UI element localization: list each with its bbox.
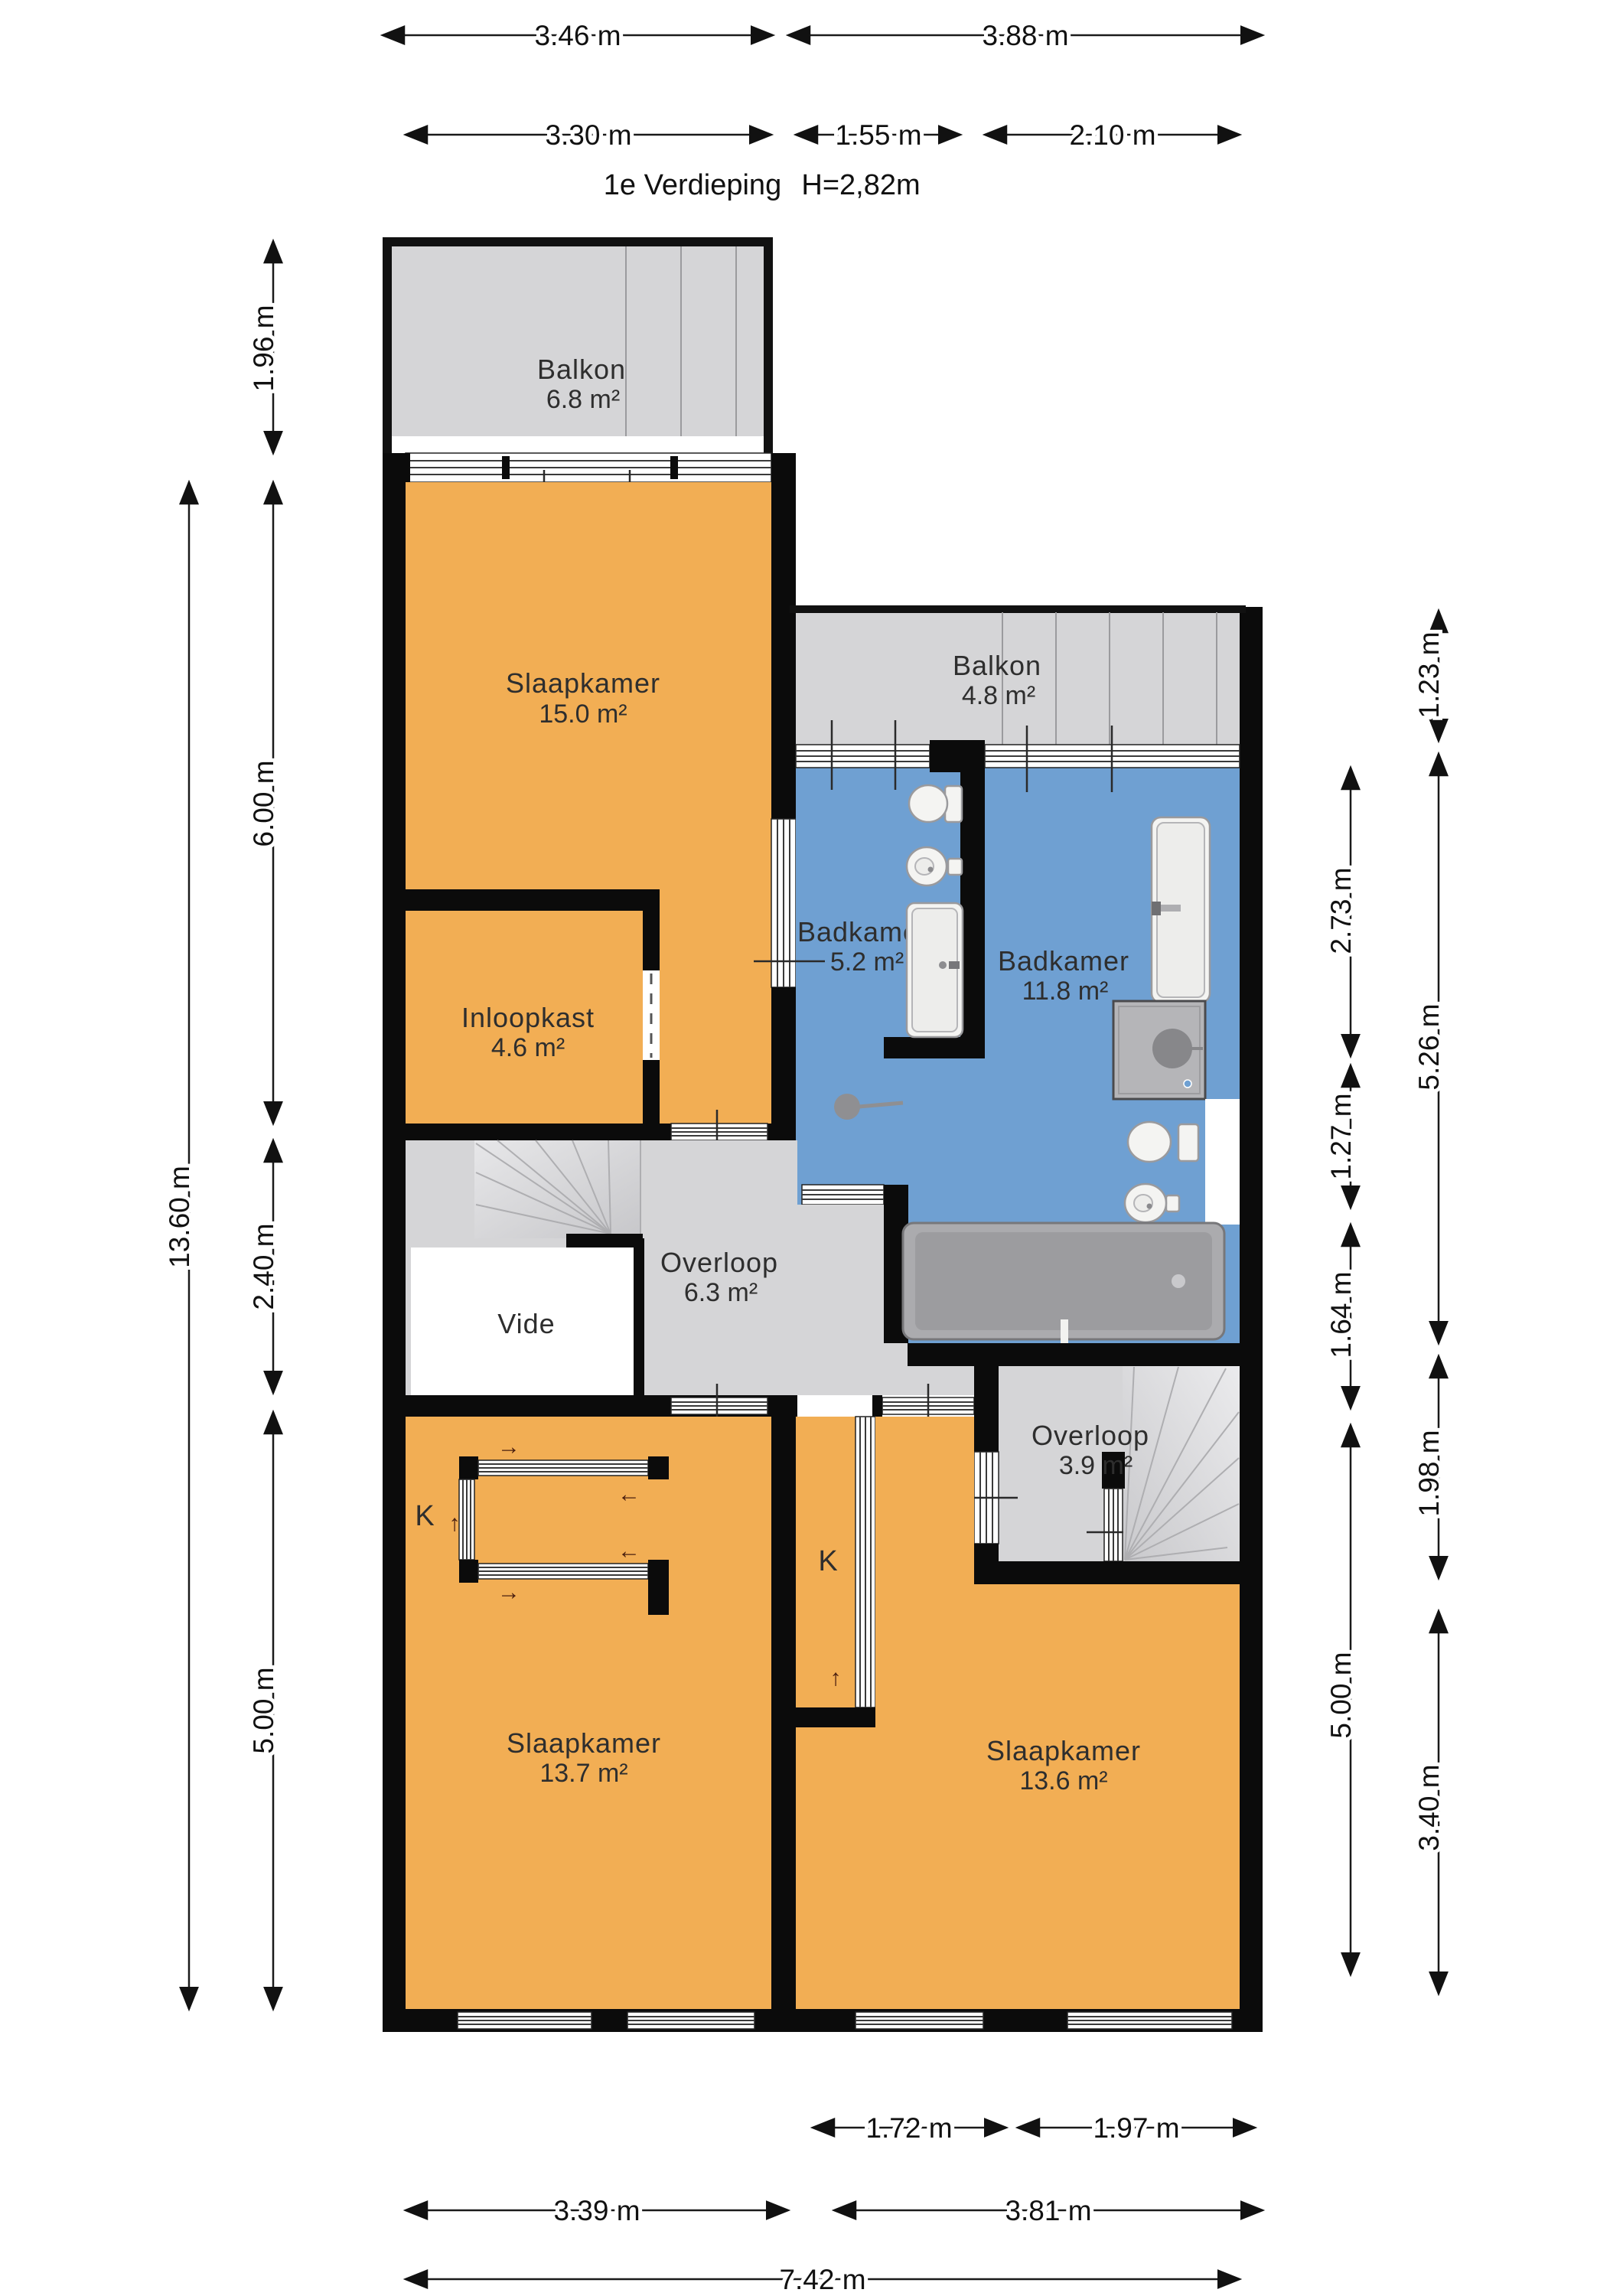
toilet-icon (909, 785, 962, 822)
dim-label: 3.88 m (982, 20, 1068, 51)
room-area: 15.0 m² (539, 700, 627, 729)
landing-right: Overloop 3.9 m² (955, 1366, 1263, 1584)
bathtub-small-icon (907, 903, 963, 1037)
bathtub-large-icon (903, 1223, 1224, 1353)
vide-right-wall (634, 1238, 644, 1395)
wall-between-bedrooms (771, 1417, 796, 2009)
bedroom-137: Slaapkamer 13.7 m² K → ← ↑ ← → (406, 1417, 771, 2009)
closet-right-wall (643, 911, 660, 970)
room-label: Balkon (953, 650, 1041, 681)
dim-label: 1.72 m (865, 2112, 952, 2144)
wall-niche (1205, 1099, 1240, 1225)
dim-label: 5.00 m (1325, 1652, 1357, 1738)
dim-label: 1.55 m (835, 119, 921, 151)
room-label: Slaapkamer (986, 1735, 1141, 1766)
dim-label: 1.97 m (1093, 2112, 1179, 2144)
room-label: Overloop (660, 1247, 778, 1278)
balcony-right-wall (764, 237, 773, 453)
page-title-height: H=2,82m (801, 169, 920, 201)
balcony-left-wall (383, 237, 392, 453)
window-bathrooms-top (796, 740, 1240, 772)
dim-label: 3.81 m (1005, 2195, 1091, 2226)
slide-arrow-icon: ↑ (449, 1511, 461, 1536)
shower-cabin-icon (1113, 1001, 1205, 1099)
slide-arrow-icon: ← (618, 1482, 640, 1507)
bathroom-small-bottom-wall (884, 1037, 985, 1058)
room-label: Inloopkast (461, 1002, 595, 1033)
room-label: Slaapkamer (506, 667, 660, 699)
dim-label: 3.30 m (545, 119, 631, 151)
toilet-icon (1128, 1122, 1198, 1162)
slide-arrow-icon: ↑ (830, 1665, 842, 1691)
window (855, 2012, 983, 2029)
landing-right-bottom-wall (974, 1561, 1263, 1584)
wall-left-exterior (383, 453, 406, 2032)
room-area: 6.8 m² (546, 385, 620, 414)
room-area: 13.7 m² (539, 1759, 627, 1788)
room-area: 6.3 m² (684, 1278, 758, 1307)
room-label: Badkamer (998, 945, 1129, 977)
dim-label: 1.96 m (248, 305, 279, 391)
door-bathroom-small (802, 1185, 884, 1205)
dim-label: 2.73 m (1325, 867, 1357, 954)
dim-label: 2.40 m (248, 1223, 279, 1309)
window (458, 2012, 592, 2029)
dim-label: 1.23 m (1413, 631, 1445, 718)
bathroom-bottom-wall (908, 1343, 1263, 1366)
room-label: Balkon (537, 354, 626, 385)
dim-label: 1.98 m (1413, 1430, 1445, 1516)
floorplan-page: Slaapkamer 15.0 m² Inloopkast 4.6 m² (0, 0, 1623, 2296)
dim-label: 5.26 m (1413, 1003, 1445, 1090)
room-area: 13.6 m² (1019, 1766, 1107, 1795)
dim-label: 1.64 m (1325, 1271, 1357, 1358)
window-balcony-top (406, 453, 771, 482)
room-area: 11.8 m² (1022, 977, 1109, 1006)
dim-label: 3.40 m (1413, 1764, 1445, 1851)
closet-label: K (415, 1500, 434, 1532)
overloop-pocket-floor (796, 1205, 884, 1343)
page-title-floor: 1e Verdieping (604, 169, 781, 201)
balcony-top-wall (383, 237, 773, 246)
wall-between-bathrooms (960, 768, 985, 1058)
landing-right-left-wall (974, 1366, 999, 1452)
slide-arrow-icon: → (497, 1434, 520, 1459)
landing-mid: Vide Overloop 6.3 m² (406, 1110, 797, 1428)
stairs-up-icon (1123, 1366, 1240, 1561)
room-area: 4.8 m² (962, 681, 1035, 710)
dim-label: 6.00 m (248, 760, 279, 846)
room-label: Overloop (1031, 1420, 1149, 1451)
room-label: Slaapkamer (507, 1727, 661, 1759)
closet-top-wall (406, 889, 660, 911)
dim-label: 13.60 m (164, 1166, 195, 1268)
window (1067, 2012, 1232, 2029)
dim-label: 3.39 m (553, 2195, 640, 2226)
wall-right-exterior (1240, 607, 1263, 2032)
room-area: 3.9 m² (1059, 1451, 1133, 1480)
dim-label: 5.00 m (248, 1667, 279, 1753)
walkin-closet: Inloopkast 4.6 m² (406, 889, 660, 1127)
bathrooms: Badkamer 5.2 m² Badkamer 11.8 m² (754, 720, 1240, 1353)
vide-top-wall (566, 1234, 643, 1247)
dim-label: 1.27 m (1325, 1093, 1357, 1179)
dim-label: 3.46 m (534, 20, 621, 51)
bathtub-vertical-icon (1152, 817, 1210, 1003)
dim-label: 2.10 m (1069, 119, 1155, 151)
room-area: 4.6 m² (491, 1033, 565, 1062)
slide-arrow-icon: → (497, 1580, 520, 1605)
dim-label: 7.42 m (779, 2264, 865, 2295)
floorplan-drawing: Slaapkamer 15.0 m² Inloopkast 4.6 m² (0, 0, 1623, 2296)
balcony-right: Balkon 4.8 m² (790, 605, 1246, 745)
stairs-down-icon (474, 1140, 640, 1238)
window (627, 2012, 754, 2029)
closet-label: K (818, 1545, 837, 1577)
balcony-right-top-wall (790, 605, 1246, 613)
slide-arrow-icon: ← (618, 1538, 640, 1564)
room-label: Vide (497, 1308, 555, 1339)
room-area: 5.2 m² (830, 947, 904, 977)
